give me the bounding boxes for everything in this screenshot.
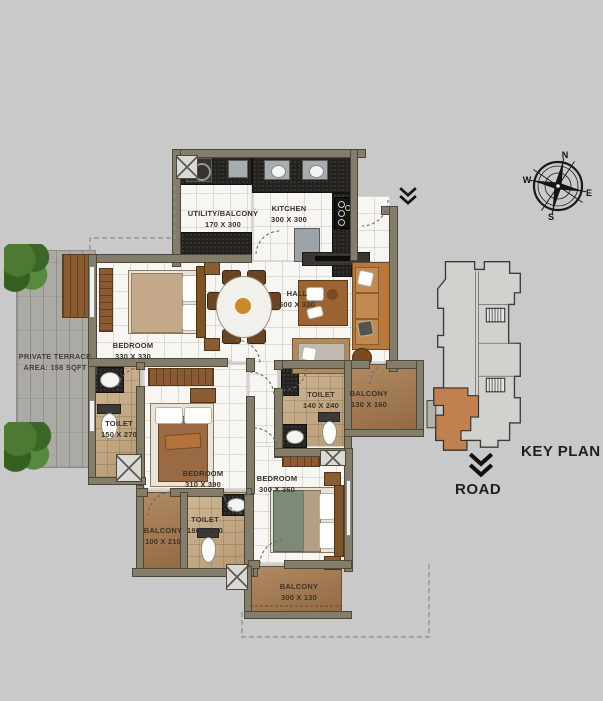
wall	[389, 206, 398, 372]
column-shaft	[116, 454, 142, 482]
compass-n: N	[562, 150, 569, 160]
room-label-balcony-east: BALCONY130 X 160	[350, 389, 388, 411]
bed-headboard	[334, 485, 344, 557]
desk	[190, 388, 216, 403]
wall	[246, 396, 255, 494]
nightstand	[324, 472, 341, 486]
wardrobe	[148, 368, 214, 386]
washbasin-icon	[100, 372, 120, 388]
entrance-arrow-icon	[397, 184, 419, 208]
compass-w: W	[523, 175, 532, 185]
room-label-bedroom-south: BEDROOM300 X 360	[257, 474, 298, 496]
wall	[88, 358, 228, 367]
floor-plan: UTILITY/BALCONY170 X 300 KITCHEN300 X 30…	[0, 0, 603, 701]
room-label-kitchen: KITCHEN300 X 300	[271, 204, 307, 226]
washbasin-icon	[286, 430, 304, 444]
compass-e: E	[586, 188, 592, 198]
wall	[244, 611, 352, 619]
kitchen-sink-icon	[302, 160, 328, 180]
nightstand	[204, 338, 220, 351]
window	[89, 266, 95, 318]
wall	[274, 360, 283, 370]
wall	[172, 149, 366, 158]
room-label-toilet-master: TOILET150 X 270	[101, 419, 137, 441]
key-plan	[424, 250, 534, 454]
wall	[350, 149, 358, 261]
column-shaft	[320, 450, 346, 466]
room-label-utility: UTILITY/BALCONY170 X 300	[188, 209, 259, 231]
kitchen-sink-icon	[264, 160, 290, 180]
wall	[344, 429, 424, 437]
road-arrow-icon	[466, 451, 496, 479]
dining-set	[206, 268, 280, 344]
window	[89, 400, 95, 432]
compass-s: S	[548, 212, 554, 222]
wall	[416, 360, 424, 437]
compass-rose-icon: N E S W	[522, 150, 594, 222]
wall	[274, 360, 370, 369]
wall	[246, 358, 255, 372]
wardrobe	[99, 268, 113, 332]
window	[346, 480, 351, 536]
room-label-bedroom-master: BEDROOM330 X 330	[113, 341, 154, 363]
plant-icon	[4, 244, 50, 294]
wall	[284, 560, 352, 569]
utility-sink-icon	[228, 160, 248, 178]
plant-icon	[4, 422, 52, 474]
room-label-bedroom-middle: BEDROOM310 X 390	[183, 469, 224, 491]
sofa	[352, 262, 394, 350]
road-label: ROAD	[455, 481, 501, 498]
column-shaft	[226, 564, 248, 590]
wall	[88, 254, 252, 263]
wall	[136, 488, 148, 497]
wall	[136, 362, 145, 370]
keyplan-title: KEY PLAN	[521, 443, 601, 460]
room-label-terrace: PRIVATE TERRACEAREA: 158 SQFT	[19, 352, 92, 374]
bed	[270, 487, 336, 553]
bed-headboard	[196, 266, 206, 338]
room-label-balcony-west: BALCONY100 X 210	[144, 526, 182, 548]
nightstand	[204, 262, 220, 275]
room-label-toilet-south: TOILET180 X 210	[187, 515, 223, 537]
room-label-balcony-south: BALCONY300 X 130	[280, 582, 318, 604]
room-label-hall: HALL600 X 330	[279, 289, 315, 311]
column-shaft	[176, 155, 198, 179]
bed	[128, 270, 202, 334]
room-label-toilet-common: TOILET140 X 240	[303, 390, 339, 412]
